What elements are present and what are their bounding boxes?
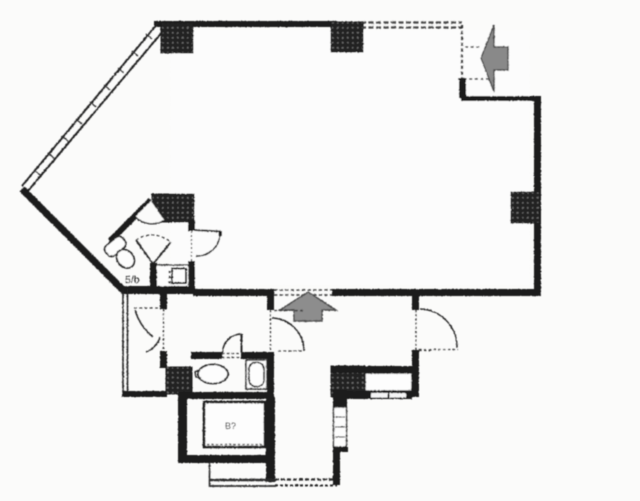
svg-text:5/b: 5/b — [125, 274, 140, 286]
svg-text:B?: B? — [225, 421, 236, 431]
